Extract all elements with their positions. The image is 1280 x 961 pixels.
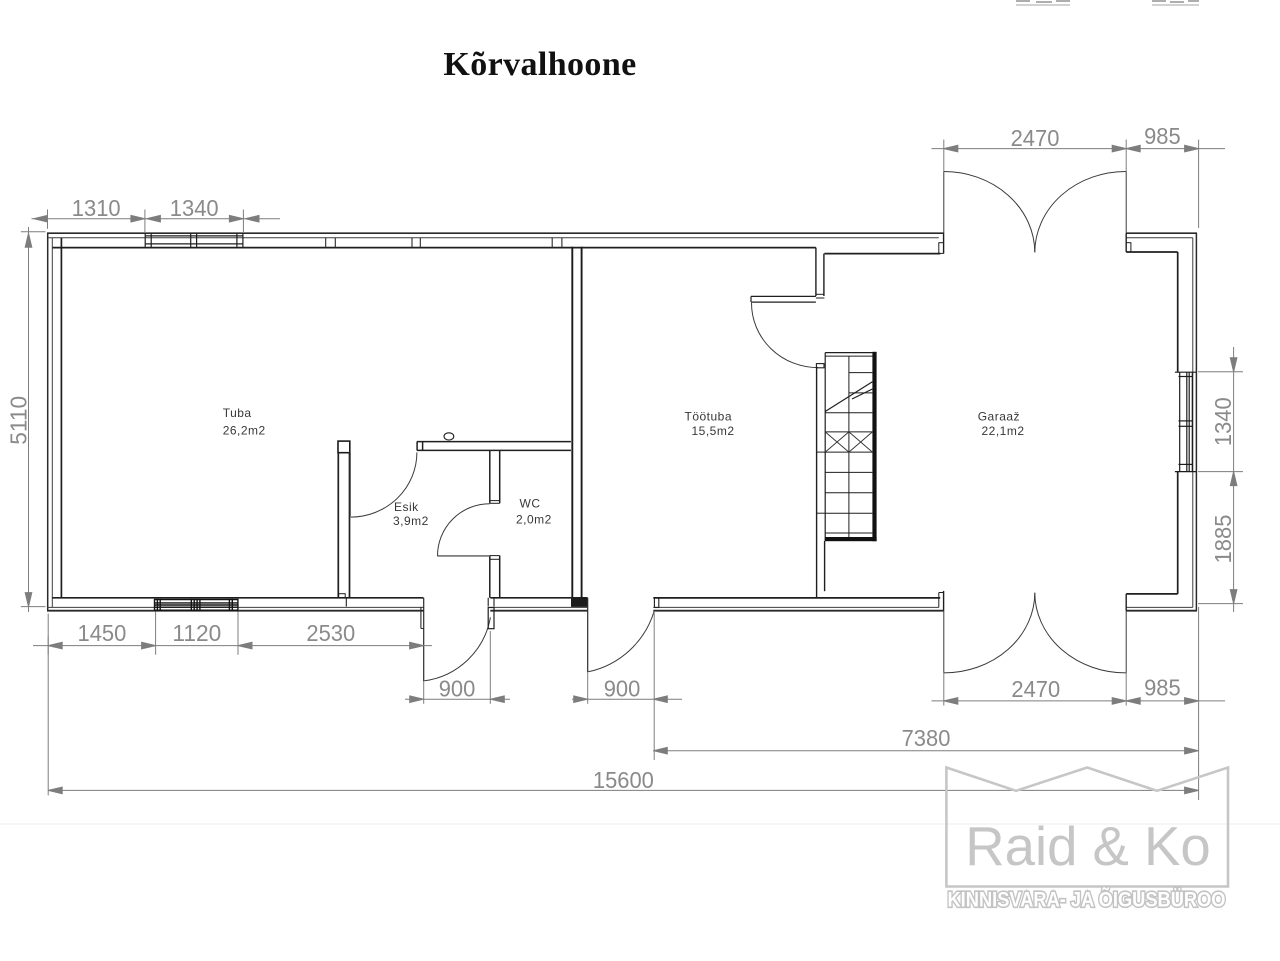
svg-text:2530: 2530 <box>306 620 355 646</box>
svg-text:1120: 1120 <box>172 620 221 646</box>
svg-text:Raid & Ko: Raid & Ko <box>965 816 1210 877</box>
svg-text:Esik: Esik <box>394 500 419 514</box>
svg-text:985: 985 <box>1144 123 1181 149</box>
svg-text:1340: 1340 <box>1210 397 1236 446</box>
svg-text:Kõrvalhoone: Kõrvalhoone <box>443 46 636 83</box>
svg-text:Tuba: Tuba <box>223 406 252 420</box>
svg-text:1450: 1450 <box>78 620 127 646</box>
svg-text:Töötuba: Töötuba <box>685 410 733 424</box>
svg-text:5110: 5110 <box>6 396 32 445</box>
svg-text:900: 900 <box>604 675 641 701</box>
svg-text:2,0m2: 2,0m2 <box>516 512 552 526</box>
svg-text:1340: 1340 <box>170 195 219 221</box>
svg-text:Garaaž: Garaaž <box>978 410 1020 424</box>
svg-text:WC: WC <box>520 496 541 510</box>
svg-text:2470: 2470 <box>1011 676 1060 702</box>
svg-text:KINNISVARA- JA ÕIGUSBÜROO: KINNISVARA- JA ÕIGUSBÜROO <box>948 887 1226 912</box>
svg-text:1885: 1885 <box>1210 515 1236 564</box>
svg-text:22,1m2: 22,1m2 <box>982 424 1025 438</box>
svg-text:2470: 2470 <box>1011 125 1060 151</box>
svg-text:15,5m2: 15,5m2 <box>692 424 735 438</box>
svg-text:900: 900 <box>439 675 476 701</box>
svg-text:7380: 7380 <box>902 725 951 751</box>
svg-text:3,9m2: 3,9m2 <box>393 514 429 528</box>
svg-text:985: 985 <box>1144 674 1181 700</box>
svg-text:26,2m2: 26,2m2 <box>223 423 266 437</box>
svg-text:1310: 1310 <box>72 195 121 221</box>
svg-text:15600: 15600 <box>593 767 654 793</box>
